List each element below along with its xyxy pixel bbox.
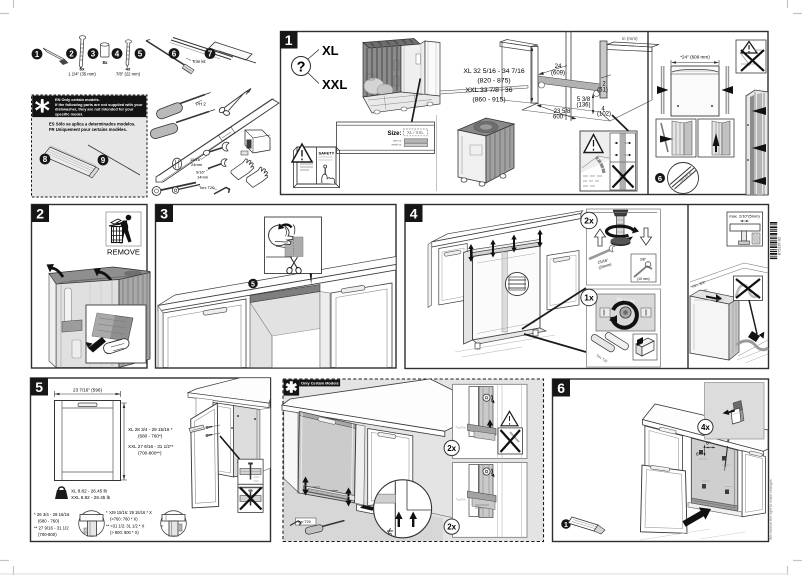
svg-text:*24" (609 mm): *24" (609 mm) — [680, 55, 710, 60]
svg-text:x: x — [161, 524, 163, 528]
svg-text:* 26 3/4 - 28 15/16: * 26 3/4 - 28 15/16 — [34, 512, 70, 517]
svg-text:6": 6" — [696, 452, 701, 458]
svg-text:ES Sólo se aplica a determinad: ES Sólo se aplica a determinados modelos… — [49, 121, 135, 126]
svg-text:XL / XXL: XL / XXL — [407, 130, 424, 135]
svg-text:(680 - 760*): (680 - 760*) — [138, 434, 163, 439]
svg-text:?: ? — [297, 60, 306, 76]
svg-text:2: 2 — [69, 50, 74, 59]
svg-text:✱: ✱ — [285, 380, 298, 397]
svg-text:Size:: Size: — [387, 131, 401, 137]
svg-text:2x: 2x — [584, 216, 594, 226]
svg-text:(10 mm): (10 mm) — [637, 277, 650, 281]
svg-text:3/8": 3/8" — [640, 258, 647, 262]
svg-text:in (mm): in (mm) — [622, 36, 638, 41]
svg-text:FR Uniquement pour certains mo: FR Uniquement pour certains modèles. — [49, 127, 127, 132]
svg-text:14mm: 14mm — [197, 175, 209, 180]
svg-text:XL: XL — [322, 43, 339, 58]
svg-text:4: 4 — [115, 50, 120, 59]
svg-text:SAFETY: SAFETY — [319, 151, 335, 156]
svg-text:6: 6 — [172, 50, 177, 59]
svg-text:XL 32 5/16 - 34 7/16: XL 32 5/16 - 34 7/16 — [463, 68, 525, 75]
svg-text:875197-02: 875197-02 — [778, 237, 782, 255]
svg-text:(700-800**): (700-800**) — [138, 451, 162, 456]
svg-text:(>760: 760 * X): (>760: 760 * X) — [110, 517, 138, 522]
svg-text:4: 4 — [410, 206, 418, 222]
svg-text:2x: 2x — [447, 523, 456, 532]
svg-text:2: 2 — [36, 206, 44, 222]
svg-text:1x: 1x — [584, 293, 594, 303]
svg-text:5: 5 — [35, 379, 43, 395]
svg-text:XL 28 3/4 - 29 15/16 *: XL 28 3/4 - 29 15/16 * — [128, 427, 173, 432]
svg-text:part no.: part no. — [393, 139, 402, 143]
svg-text:7/8" (22 mm): 7/8" (22 mm) — [116, 72, 141, 77]
svg-text:6: 6 — [658, 174, 662, 183]
svg-text:XXL: XXL — [322, 77, 347, 92]
svg-text:7: 7 — [208, 50, 213, 59]
svg-text:XXL 33 7/8 - 36: XXL 33 7/8 - 36 — [466, 87, 513, 94]
svg-text:6: 6 — [557, 380, 565, 396]
svg-text:6": 6" — [706, 441, 711, 447]
svg-text:1: 1 — [35, 50, 40, 59]
svg-text:(136): (136) — [576, 103, 590, 109]
svg-text:serial no.: serial no. — [391, 143, 402, 147]
svg-text:4x: 4x — [701, 423, 710, 432]
svg-text:REMOVE: REMOVE — [107, 248, 140, 257]
svg-text:(> 800: 800 * X): (> 800: 800 * X) — [110, 530, 139, 535]
svg-text:8: 8 — [43, 155, 48, 164]
svg-text:2x: 2x — [447, 444, 456, 453]
svg-text:(102): (102) — [597, 112, 611, 118]
svg-text:* >29 15/16: 29 15/16 * X: * >29 15/16: 29 15/16 * X — [106, 510, 152, 515]
svg-text:max. 2/10"(5mm): max. 2/10"(5mm) — [729, 214, 760, 219]
svg-text:(820 - 875): (820 - 875) — [477, 78, 510, 85]
svg-text:(51): (51) — [597, 88, 608, 94]
svg-text:XXL 27 9/16 - 31 1/2**: XXL 27 9/16 - 31 1/2** — [128, 444, 174, 449]
svg-text:24mm: 24mm — [191, 162, 203, 167]
svg-text:(609): (609) — [551, 71, 565, 77]
svg-text:8x: 8x — [103, 60, 108, 65]
svg-text:23 7/16" (596): 23 7/16" (596) — [73, 388, 102, 393]
svg-text:We reserve the right to make c: We reserve the right to make changes. — [769, 478, 773, 540]
svg-text:Torx T20: Torx T20 — [199, 185, 215, 190]
svg-text:** >31 1/2: 31 1/2 * X: ** >31 1/2: 31 1/2 * X — [106, 524, 145, 529]
svg-text:(680 - 760): (680 - 760) — [38, 519, 60, 524]
svg-text:(860 - 915): (860 - 915) — [472, 97, 505, 104]
svg-text:specific model.: specific model. — [55, 112, 83, 117]
svg-text:3: 3 — [91, 50, 96, 59]
svg-text:Only Certain Models: Only Certain Models — [301, 381, 339, 386]
svg-text:TypTite: TypTite — [456, 498, 466, 502]
svg-text:1: 1 — [285, 32, 293, 48]
svg-text:Trim kit: Trim kit — [192, 59, 206, 64]
svg-text:5: 5 — [251, 281, 255, 288]
svg-text:(700-800): (700-800) — [38, 532, 57, 537]
svg-text:1 1/4" (35 mm): 1 1/4" (35 mm) — [68, 72, 96, 77]
svg-text:** 27 9/16 - 31 1/2: ** 27 9/16 - 31 1/2 — [34, 526, 69, 531]
svg-text:TypTite: TypTite — [456, 426, 466, 430]
svg-text:1: 1 — [564, 522, 568, 529]
svg-text:3: 3 — [160, 206, 168, 222]
svg-text:XXL 8.82 - 26.45 lb: XXL 8.82 - 26.45 lb — [71, 495, 111, 500]
svg-text:XL 8.82 - 26.45 lb: XL 8.82 - 26.45 lb — [71, 489, 108, 494]
svg-text:9: 9 — [101, 156, 106, 165]
svg-text:5: 5 — [138, 50, 143, 59]
svg-text:600: 600 — [553, 115, 564, 121]
